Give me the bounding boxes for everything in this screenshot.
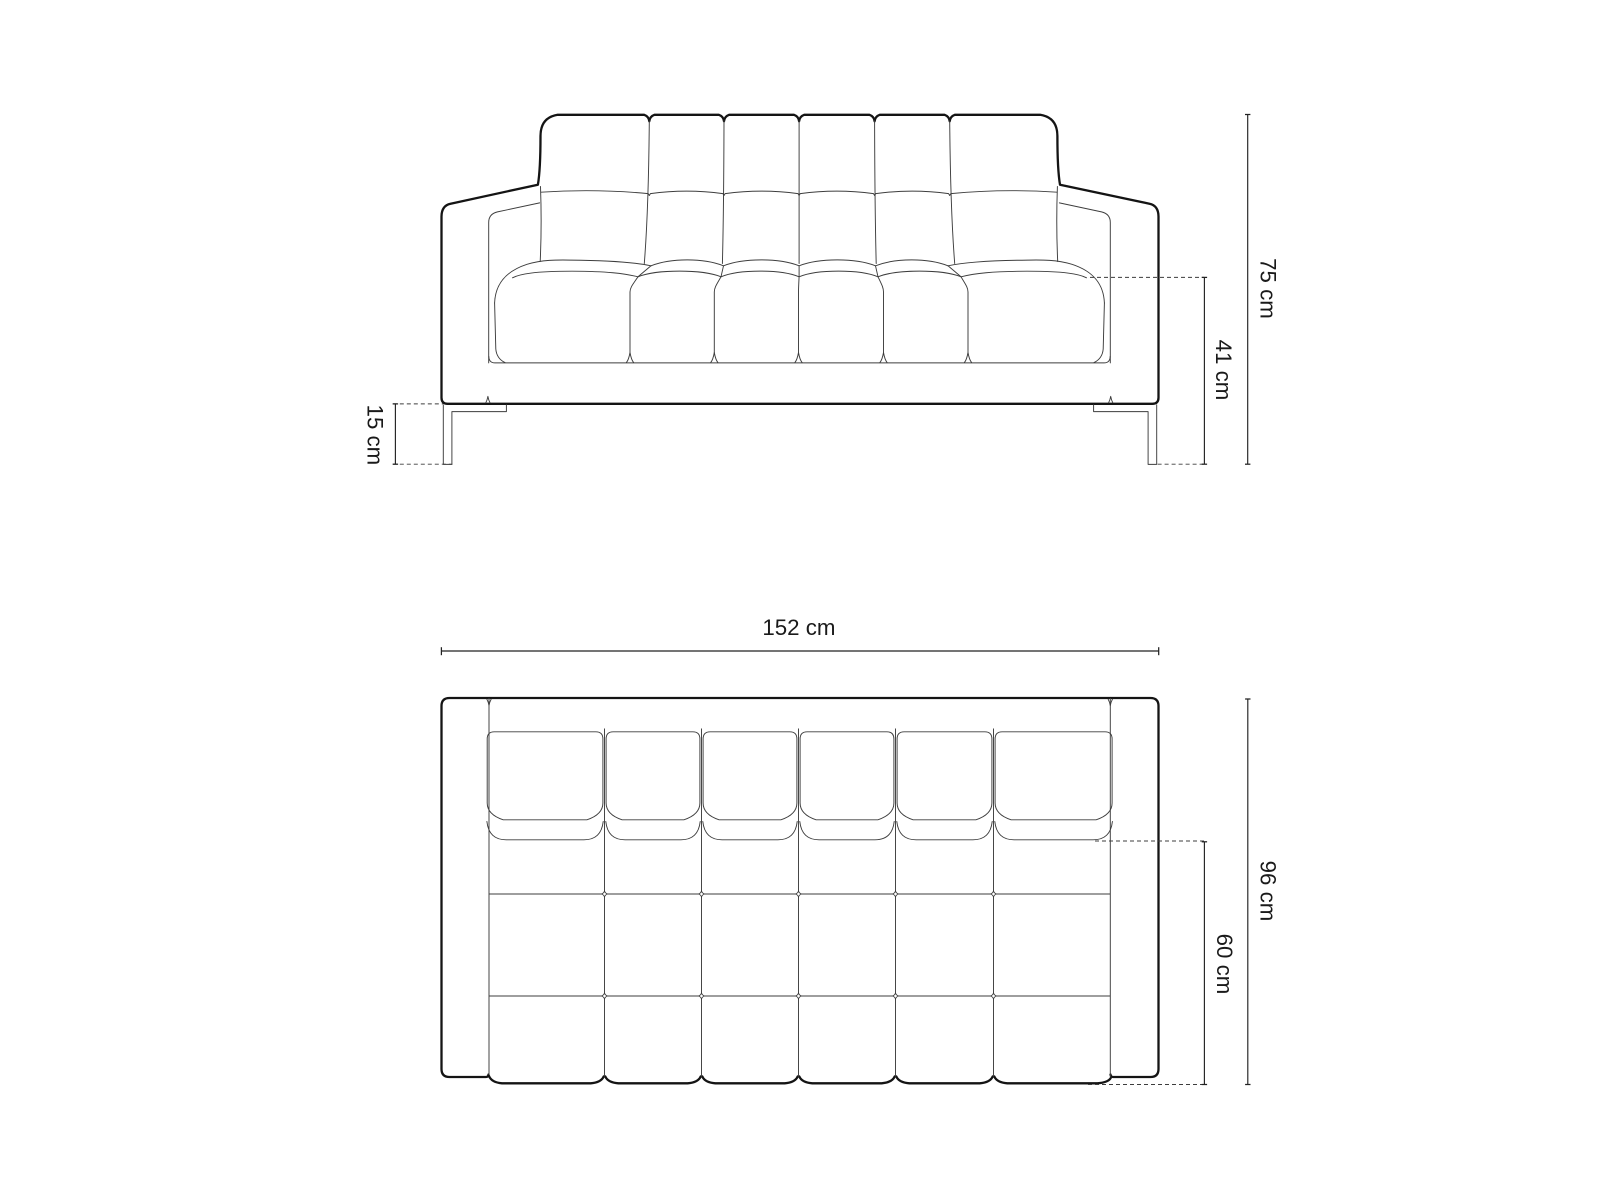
svg-text:75 cm: 75 cm: [1256, 258, 1281, 319]
svg-text:15 cm: 15 cm: [363, 405, 388, 466]
svg-text:96 cm: 96 cm: [1255, 861, 1280, 922]
svg-text:41 cm: 41 cm: [1211, 340, 1236, 401]
svg-text:60 cm: 60 cm: [1212, 934, 1237, 995]
svg-text:152 cm: 152 cm: [762, 615, 835, 640]
